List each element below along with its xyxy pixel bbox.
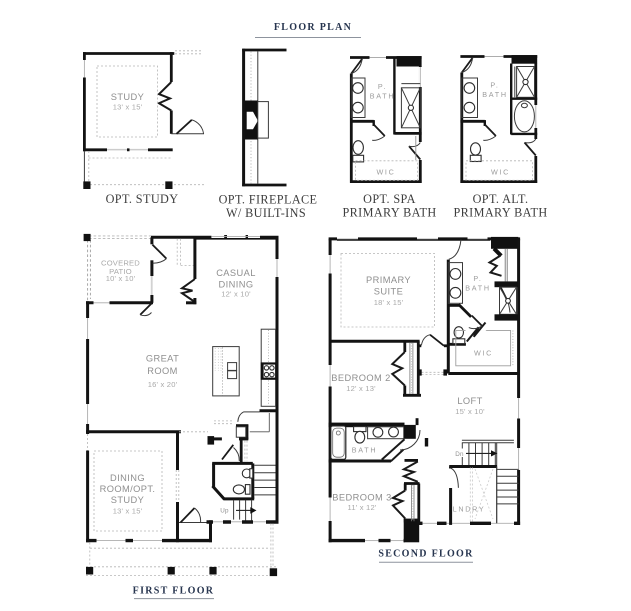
svg-text:P.: P.	[378, 82, 387, 91]
svg-text:LOFT: LOFT	[457, 396, 482, 406]
svg-text:WIC: WIC	[376, 168, 395, 177]
svg-text:15' x 10': 15' x 10'	[455, 407, 485, 416]
svg-text:P.: P.	[473, 274, 482, 283]
svg-text:ROOM: ROOM	[147, 366, 178, 376]
svg-text:GREAT: GREAT	[146, 354, 179, 364]
svg-text:Up: Up	[220, 507, 229, 514]
svg-text:16' x 20': 16' x 20'	[148, 380, 178, 389]
svg-text:BATH: BATH	[482, 90, 507, 99]
svg-text:DINING: DINING	[219, 280, 254, 290]
svg-text:STUDY: STUDY	[111, 495, 145, 505]
svg-text:P.: P.	[490, 81, 499, 90]
svg-text:OPT. FIREPLACE: OPT. FIREPLACE	[219, 193, 318, 207]
svg-text:LNDRY: LNDRY	[453, 505, 486, 514]
svg-text:11' x 12': 11' x 12'	[347, 503, 376, 512]
svg-text:OPT. STUDY: OPT. STUDY	[106, 192, 179, 206]
svg-text:BATH: BATH	[370, 92, 395, 101]
svg-text:SECOND FLOOR: SECOND FLOOR	[378, 549, 473, 560]
svg-text:FIRST FLOOR: FIRST FLOOR	[133, 585, 215, 596]
svg-text:CASUAL: CASUAL	[216, 268, 256, 278]
svg-text:Dn: Dn	[455, 451, 464, 458]
svg-text:OPT. SPA: OPT. SPA	[363, 192, 416, 206]
svg-text:WIC: WIC	[491, 168, 510, 177]
svg-text:BATH: BATH	[352, 446, 377, 455]
svg-text:PRIMARY: PRIMARY	[366, 275, 411, 285]
svg-text:BEDROOM 3: BEDROOM 3	[332, 493, 391, 503]
svg-text:10' x 10': 10' x 10'	[106, 274, 136, 283]
svg-text:13' x 15': 13' x 15'	[113, 507, 143, 516]
svg-text:SUITE: SUITE	[374, 287, 403, 297]
svg-text:13' x 15': 13' x 15'	[113, 103, 143, 112]
svg-text:12' x 13': 12' x 13'	[346, 384, 376, 393]
svg-text:STUDY: STUDY	[111, 92, 145, 102]
svg-text:FLOOR PLAN: FLOOR PLAN	[274, 22, 352, 33]
svg-text:PRIMARY BATH: PRIMARY BATH	[453, 206, 547, 220]
svg-text:BEDROOM 2: BEDROOM 2	[331, 373, 390, 383]
svg-text:12' x 10': 12' x 10'	[221, 289, 251, 298]
svg-text:WIC: WIC	[474, 349, 493, 358]
svg-text:DINING: DINING	[110, 473, 145, 483]
svg-text:PRIMARY BATH: PRIMARY BATH	[342, 206, 436, 220]
svg-text:ROOM/OPT.: ROOM/OPT.	[100, 484, 156, 494]
svg-text:18' x 15': 18' x 15'	[374, 298, 404, 307]
svg-text:W/ BUILT-INS: W/ BUILT-INS	[226, 206, 306, 220]
svg-text:OPT. ALT.: OPT. ALT.	[473, 192, 529, 206]
svg-text:BATH: BATH	[465, 284, 490, 293]
